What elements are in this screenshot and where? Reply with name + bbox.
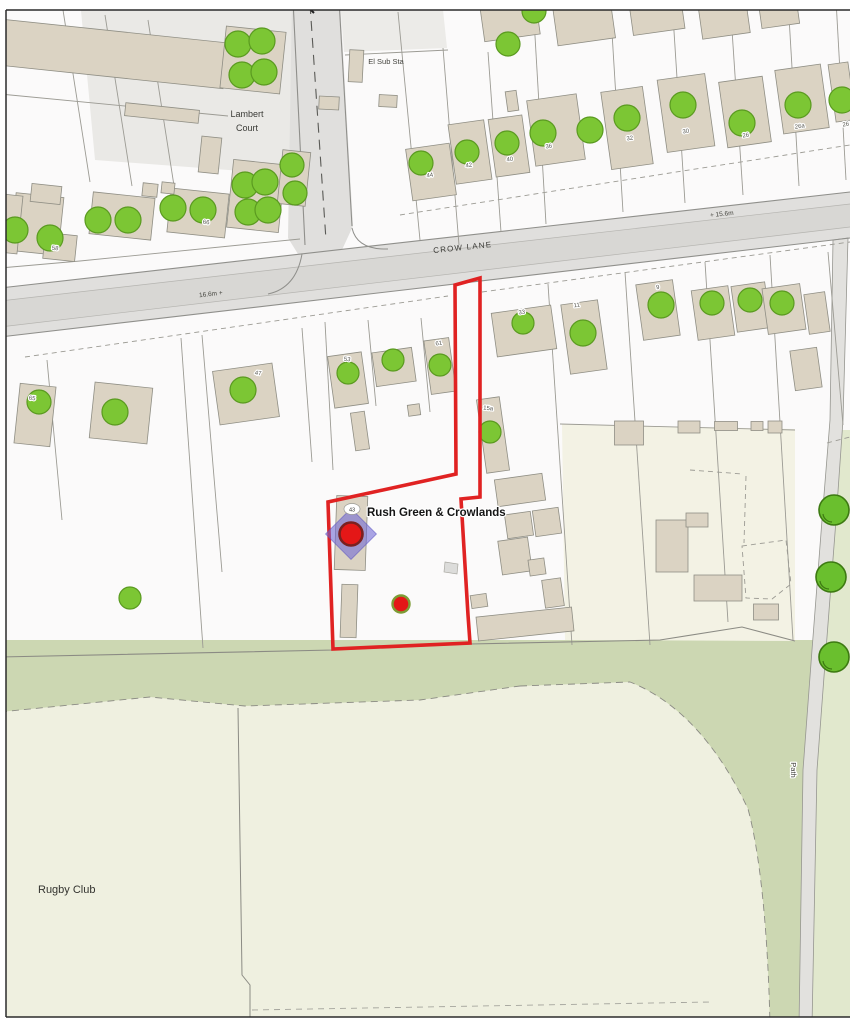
- tree-icon: [337, 362, 359, 384]
- house-number-43: 43: [349, 508, 355, 514]
- tree-icon: [280, 153, 304, 177]
- tree-icon: [670, 92, 696, 118]
- building: [542, 578, 565, 608]
- tree-icon: [577, 117, 603, 143]
- building: [407, 404, 420, 417]
- building: [198, 136, 222, 174]
- building: [319, 96, 340, 110]
- tree-icon: [115, 207, 141, 233]
- tree-icon: [283, 181, 307, 205]
- parcel-s2: [181, 338, 203, 648]
- tree-icon: [614, 105, 640, 131]
- tree-icon: [251, 59, 277, 85]
- tree-icon: [102, 399, 128, 425]
- bush-tree-icon: [819, 642, 849, 672]
- tree-icon: [249, 28, 275, 54]
- parcel-s5: [325, 322, 333, 470]
- tree-icon: [27, 390, 51, 414]
- site-label-rush-green-crowlands: Rush Green & Crowlands: [367, 507, 506, 519]
- place-label-el-sub-sta: El Sub Sta: [368, 57, 404, 66]
- place-label-lambert-court-line1: Lambert: [230, 109, 264, 119]
- tree-icon: [479, 421, 501, 443]
- site-marker-dot[interactable]: [340, 523, 363, 546]
- tree-icon: [37, 225, 63, 251]
- house-number-15a: 15a: [483, 405, 494, 412]
- building: [790, 347, 822, 390]
- tree-icon: [160, 195, 186, 221]
- place-label-rugby-club: Rugby Club: [38, 884, 95, 896]
- building: [615, 421, 644, 445]
- building: [528, 558, 546, 576]
- building: [476, 607, 574, 641]
- tree-icon: [382, 349, 404, 371]
- building: [505, 90, 519, 111]
- tree-icon: [700, 291, 724, 315]
- building: [470, 593, 488, 608]
- tree-icon: [829, 87, 850, 113]
- page-margin: [0, 0, 6, 1026]
- region-rugby-field: [0, 682, 770, 1026]
- building: [30, 183, 62, 204]
- house-number-65: 65: [28, 396, 36, 403]
- tree-icon: [570, 320, 596, 346]
- bush-tree-icon: [819, 495, 849, 525]
- tree-icon: [738, 288, 762, 312]
- tree-icon: [495, 131, 519, 155]
- tree-icon: [409, 151, 433, 175]
- path-label: Path: [789, 762, 798, 777]
- tree-icon: [85, 207, 111, 233]
- tree-icon: [429, 354, 451, 376]
- tree-icon: [496, 32, 520, 56]
- tree-icon: [785, 92, 811, 118]
- bush-tree-icon: [816, 562, 846, 592]
- building: [678, 421, 700, 433]
- tree-icon: [252, 169, 278, 195]
- building: [686, 513, 708, 527]
- building: [694, 575, 742, 601]
- building: [804, 292, 830, 335]
- building: [715, 422, 738, 431]
- building: [498, 537, 532, 575]
- tree-icon: [230, 377, 256, 403]
- house-number-66: 66: [202, 220, 210, 227]
- building: [754, 604, 779, 620]
- building: [494, 473, 545, 506]
- parcel-s4: [302, 328, 312, 462]
- page-margin: [0, 0, 850, 10]
- map-container: LambertCourtEl Sub StaCROW LANE+ 15.6m16…: [0, 0, 850, 1026]
- building: [768, 421, 782, 433]
- tree-icon: [455, 140, 479, 164]
- page-margin: [0, 1017, 850, 1026]
- tree-icon: [119, 587, 141, 609]
- building: [161, 182, 175, 194]
- map-canvas[interactable]: LambertCourtEl Sub StaCROW LANE+ 15.6m16…: [0, 0, 850, 1026]
- building: [348, 50, 364, 83]
- building: [504, 511, 533, 538]
- building: [350, 411, 369, 451]
- house-number-58: 58: [51, 246, 59, 253]
- building: [340, 584, 358, 638]
- house-number-53: 53: [343, 357, 351, 364]
- building: [656, 520, 688, 572]
- house-number-26b: 26: [842, 121, 850, 128]
- tree-icon: [648, 292, 674, 318]
- building: [142, 183, 158, 197]
- building: [379, 95, 398, 108]
- building: [532, 507, 561, 536]
- secondary-marker-dot[interactable]: [393, 596, 410, 613]
- tree-icon: [225, 31, 251, 57]
- tree-icon: [770, 291, 794, 315]
- region-gray-shed: [444, 562, 458, 574]
- house-number-47: 47: [254, 371, 262, 378]
- place-label-lambert-court-line2: Court: [236, 123, 259, 133]
- tree-icon: [530, 120, 556, 146]
- tree-icon: [729, 110, 755, 136]
- tree-icon: [255, 197, 281, 223]
- building: [751, 422, 763, 431]
